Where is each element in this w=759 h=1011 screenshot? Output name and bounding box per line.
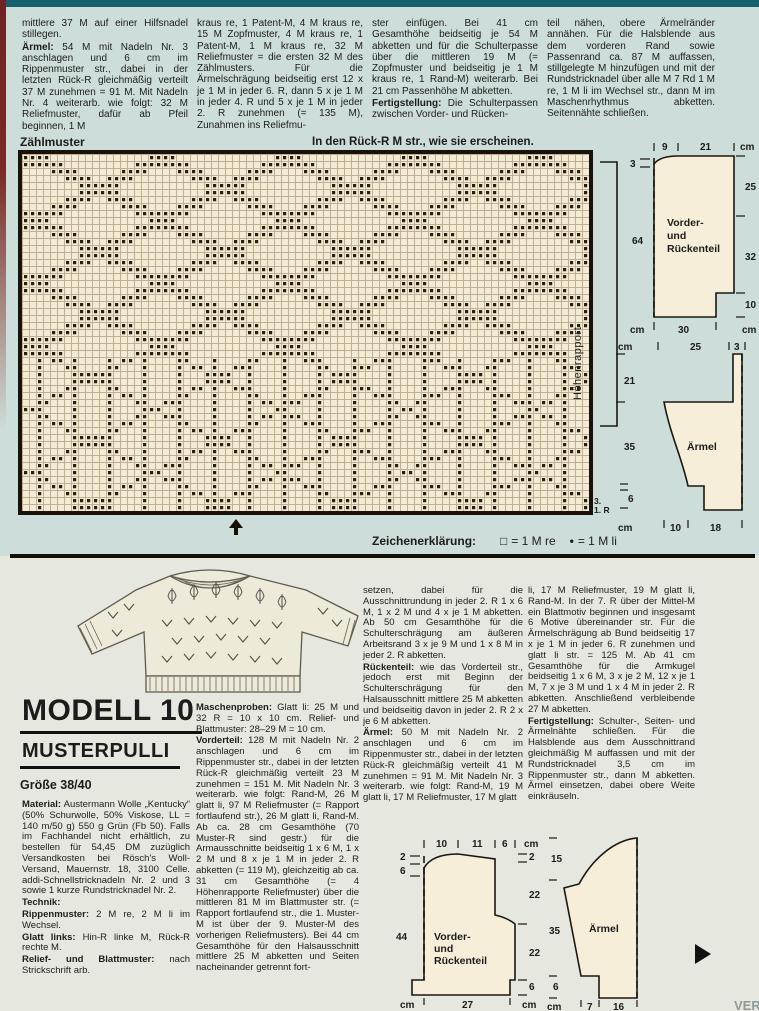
measure-6-right: 6 — [529, 982, 535, 993]
section-divider — [10, 554, 755, 558]
purl-dot-icon: • — [570, 534, 574, 548]
model-title: MODELL 10 — [20, 694, 202, 734]
piece-label-line3: Rückenteil — [667, 243, 720, 255]
measure-cm-top: cm — [524, 839, 539, 850]
measure-6: 6 — [628, 494, 634, 505]
sleeve-shape — [664, 354, 742, 510]
measure-44: 44 — [396, 932, 408, 943]
measure-10: 10 — [745, 300, 757, 311]
measure-21: 21 — [700, 142, 712, 153]
chart-note: In den Rück-R M str., wie sie erscheinen… — [312, 136, 534, 148]
measure-10: 10 — [670, 523, 682, 534]
chart-grid-svg — [22, 154, 589, 511]
schematic-sleeve-bottom: 15 35 6 cm 7 16 Ärmel — [545, 828, 660, 1011]
model-subtitle: MUSTERPULLI — [20, 740, 180, 769]
measure-cm-bl: cm — [630, 325, 645, 336]
schematic-sleeve-top: cm 25 3 21 35 6 cm 10 18 Ärmel — [612, 338, 759, 543]
top-article-col3: ster einfügen. Bei 41 cm Gesamthöhe beid… — [372, 18, 538, 122]
schematic-front-back-top: 9 21 cm 3 64 25 32 10 cm 30 cm Vorder- u… — [612, 140, 759, 338]
chart-grid — [22, 154, 589, 511]
sweater-illustration — [50, 560, 390, 708]
measure-10: 10 — [436, 839, 448, 850]
measure-9: 9 — [662, 142, 668, 153]
bottom-article-col4: li, 17 M Reliefmuster, 19 M glatt li, Ra… — [528, 586, 695, 804]
page-top-edge — [0, 0, 759, 7]
measure-35: 35 — [549, 926, 561, 937]
measure-25: 25 — [745, 182, 757, 193]
model-size: Größe 38/40 — [20, 778, 92, 792]
measure-6: 6 — [502, 839, 508, 850]
measure-2-right: 2 — [529, 852, 535, 863]
measure-cm-top: cm — [740, 142, 755, 153]
sleeve-shape — [564, 838, 637, 998]
measure-18: 18 — [710, 523, 722, 534]
top-article-col2: kraus re, 1 Patent-M, 4 M kraus re, 15 M… — [197, 18, 363, 132]
chart-title: Zählmuster — [20, 135, 85, 149]
measure-cm-br: cm — [522, 1000, 537, 1010]
top-article-col1: mittlere 37 M auf einer Hilfsnadel still… — [22, 18, 188, 133]
magazine-name-cut: VERE — [734, 998, 759, 1011]
measure-cm-br: cm — [742, 325, 757, 336]
knitting-chart — [18, 150, 593, 515]
measure-32: 32 — [745, 252, 757, 263]
piece-label-line2: und — [667, 230, 686, 242]
measure-3: 3 — [630, 159, 636, 170]
measure-22b: 22 — [529, 948, 541, 959]
measure-35: 35 — [624, 442, 636, 453]
chart-row-marks: 3. 1. R — [594, 497, 610, 515]
next-page-arrow-icon — [695, 944, 711, 964]
measure-11: 11 — [472, 839, 483, 850]
schematic-front-back-bottom: 10 11 6 cm 2 6 44 2 22 22 6 cm 27 cm Vor… — [392, 838, 542, 1010]
pattern-start-arrow-icon — [228, 519, 244, 536]
measure-15: 15 — [551, 854, 563, 865]
piece-label: Ärmel — [687, 440, 717, 453]
binding-edge — [0, 0, 6, 430]
measure-64: 64 — [632, 236, 644, 247]
measure-2-left: 2 — [400, 852, 406, 863]
piece-label: Ärmel — [589, 922, 619, 935]
measure-25: 25 — [690, 342, 702, 353]
legend-purl-text: = 1 M li — [578, 534, 617, 548]
measure-16: 16 — [613, 1002, 625, 1011]
bottom-article-col2: Maschenproben: Glatt li: 25 M und 32 R =… — [196, 703, 359, 975]
knit-square-icon: □ — [500, 534, 507, 548]
piece-label-line1: Vorder- — [667, 217, 704, 229]
measure-21: 21 — [624, 376, 636, 387]
top-article-col4: teil nähen, obere Ärmelränder annähen. F… — [547, 18, 715, 121]
piece-label-line3: Rückenteil — [434, 955, 487, 967]
measure-cm-bl: cm — [400, 1000, 415, 1010]
measure-cm-bot: cm — [547, 1002, 562, 1011]
bottom-article-col3: setzen, dabei für die Ausschnittrundung … — [363, 586, 523, 805]
legend-title: Zeichenerklärung: — [372, 534, 476, 548]
row-mark-1: 1. R — [594, 506, 610, 515]
piece-label-line1: Vorder- — [434, 931, 471, 943]
measure-22a: 22 — [529, 890, 541, 901]
front-back-shape — [654, 156, 734, 317]
measure-cm-top: cm — [618, 342, 633, 353]
legend-knit-text: = 1 M re — [511, 534, 555, 548]
magazine-page: mittlere 37 M auf einer Hilfsnadel still… — [0, 0, 759, 1011]
measure-7: 7 — [587, 1002, 593, 1011]
piece-label-line2: und — [434, 943, 453, 955]
front-back-shape — [412, 854, 515, 995]
measure-6: 6 — [553, 982, 559, 993]
measure-27: 27 — [462, 1000, 474, 1010]
bottom-article-col1: Material: Austermann Wolle „Kentucky“ (5… — [22, 800, 190, 978]
measure-3: 3 — [734, 342, 740, 353]
measure-cm-bot: cm — [618, 523, 633, 534]
measure-30: 30 — [678, 325, 690, 336]
chart-legend: Zeichenerklärung:□= 1 M re•= 1 M li — [372, 534, 617, 548]
height-repeat-label: Höhenrapport — [572, 200, 584, 400]
measure-6-left: 6 — [400, 866, 406, 877]
